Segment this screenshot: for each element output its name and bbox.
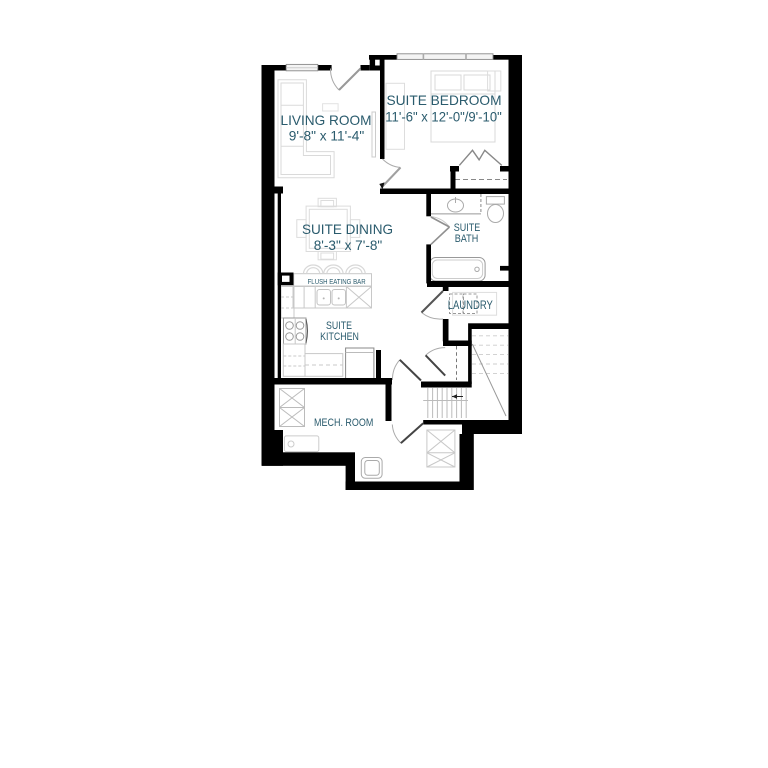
svg-text:SUITE BEDROOM: SUITE BEDROOM — [387, 92, 502, 108]
svg-text:BATH: BATH — [455, 233, 479, 245]
svg-text:9'-8" x 11'-4": 9'-8" x 11'-4" — [289, 128, 365, 144]
svg-text:8'-3" x 7'-8": 8'-3" x 7'-8" — [314, 237, 383, 253]
svg-text:LAUNDRY: LAUNDRY — [448, 300, 493, 312]
svg-text:FLUSH EATING BAR: FLUSH EATING BAR — [308, 277, 366, 286]
svg-text:LIVING ROOM: LIVING ROOM — [281, 112, 372, 128]
svg-text:SUITE DINING: SUITE DINING — [302, 221, 393, 237]
svg-text:MECH. ROOM: MECH. ROOM — [314, 417, 373, 429]
svg-text:KITCHEN: KITCHEN — [320, 331, 359, 343]
svg-text:11'-6" x 12'-0"/9'-10": 11'-6" x 12'-0"/9'-10" — [385, 109, 502, 125]
